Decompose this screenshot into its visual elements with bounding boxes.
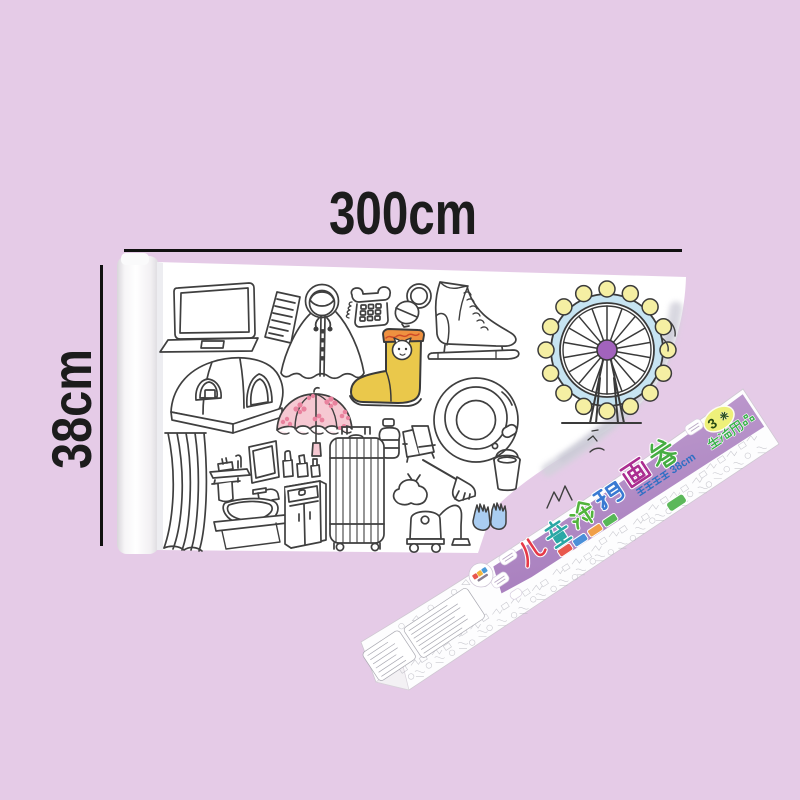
svg-text:38cm: 38cm (40, 349, 103, 469)
svg-text:300cm: 300cm (329, 180, 477, 247)
